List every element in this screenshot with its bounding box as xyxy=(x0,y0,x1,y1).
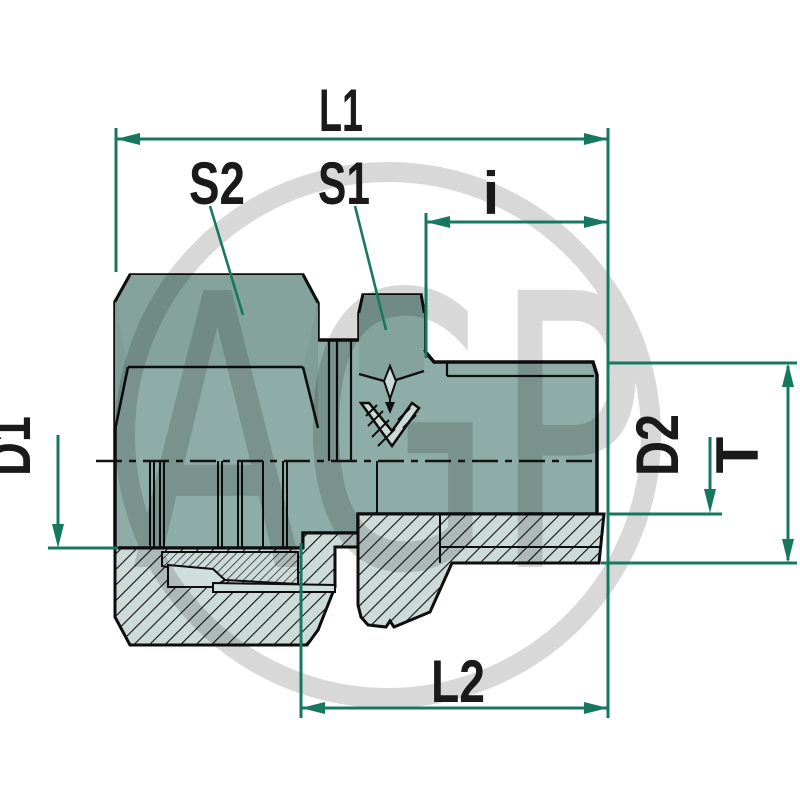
arrow-l1-right xyxy=(584,133,608,145)
arrow-l2-left xyxy=(301,702,325,714)
technical-drawing-page: AGP L1 S2 S xyxy=(0,0,800,800)
dim-label-s1: S1 xyxy=(318,150,370,217)
watermark: AGP xyxy=(125,172,651,698)
arrow-l2-right xyxy=(584,702,608,714)
dim-label-s2: S2 xyxy=(189,150,245,217)
dim-label-d2: D2 xyxy=(624,414,691,476)
arrow-l1-left xyxy=(116,133,140,145)
arrow-t-up xyxy=(782,363,794,387)
watermark-text: AGP xyxy=(132,214,645,657)
fitting-diagram: AGP L1 S2 S xyxy=(0,0,800,800)
dim-label-l2: L2 xyxy=(431,648,485,715)
arrow-t-down xyxy=(782,539,794,563)
dim-label-l1: L1 xyxy=(319,77,363,144)
arrow-d1-down xyxy=(52,524,64,548)
dim-label-t: T xyxy=(704,437,771,474)
dim-label-i: i xyxy=(483,160,500,227)
arrow-d2-down xyxy=(704,489,716,513)
dim-label-d1: D1 xyxy=(0,416,43,476)
